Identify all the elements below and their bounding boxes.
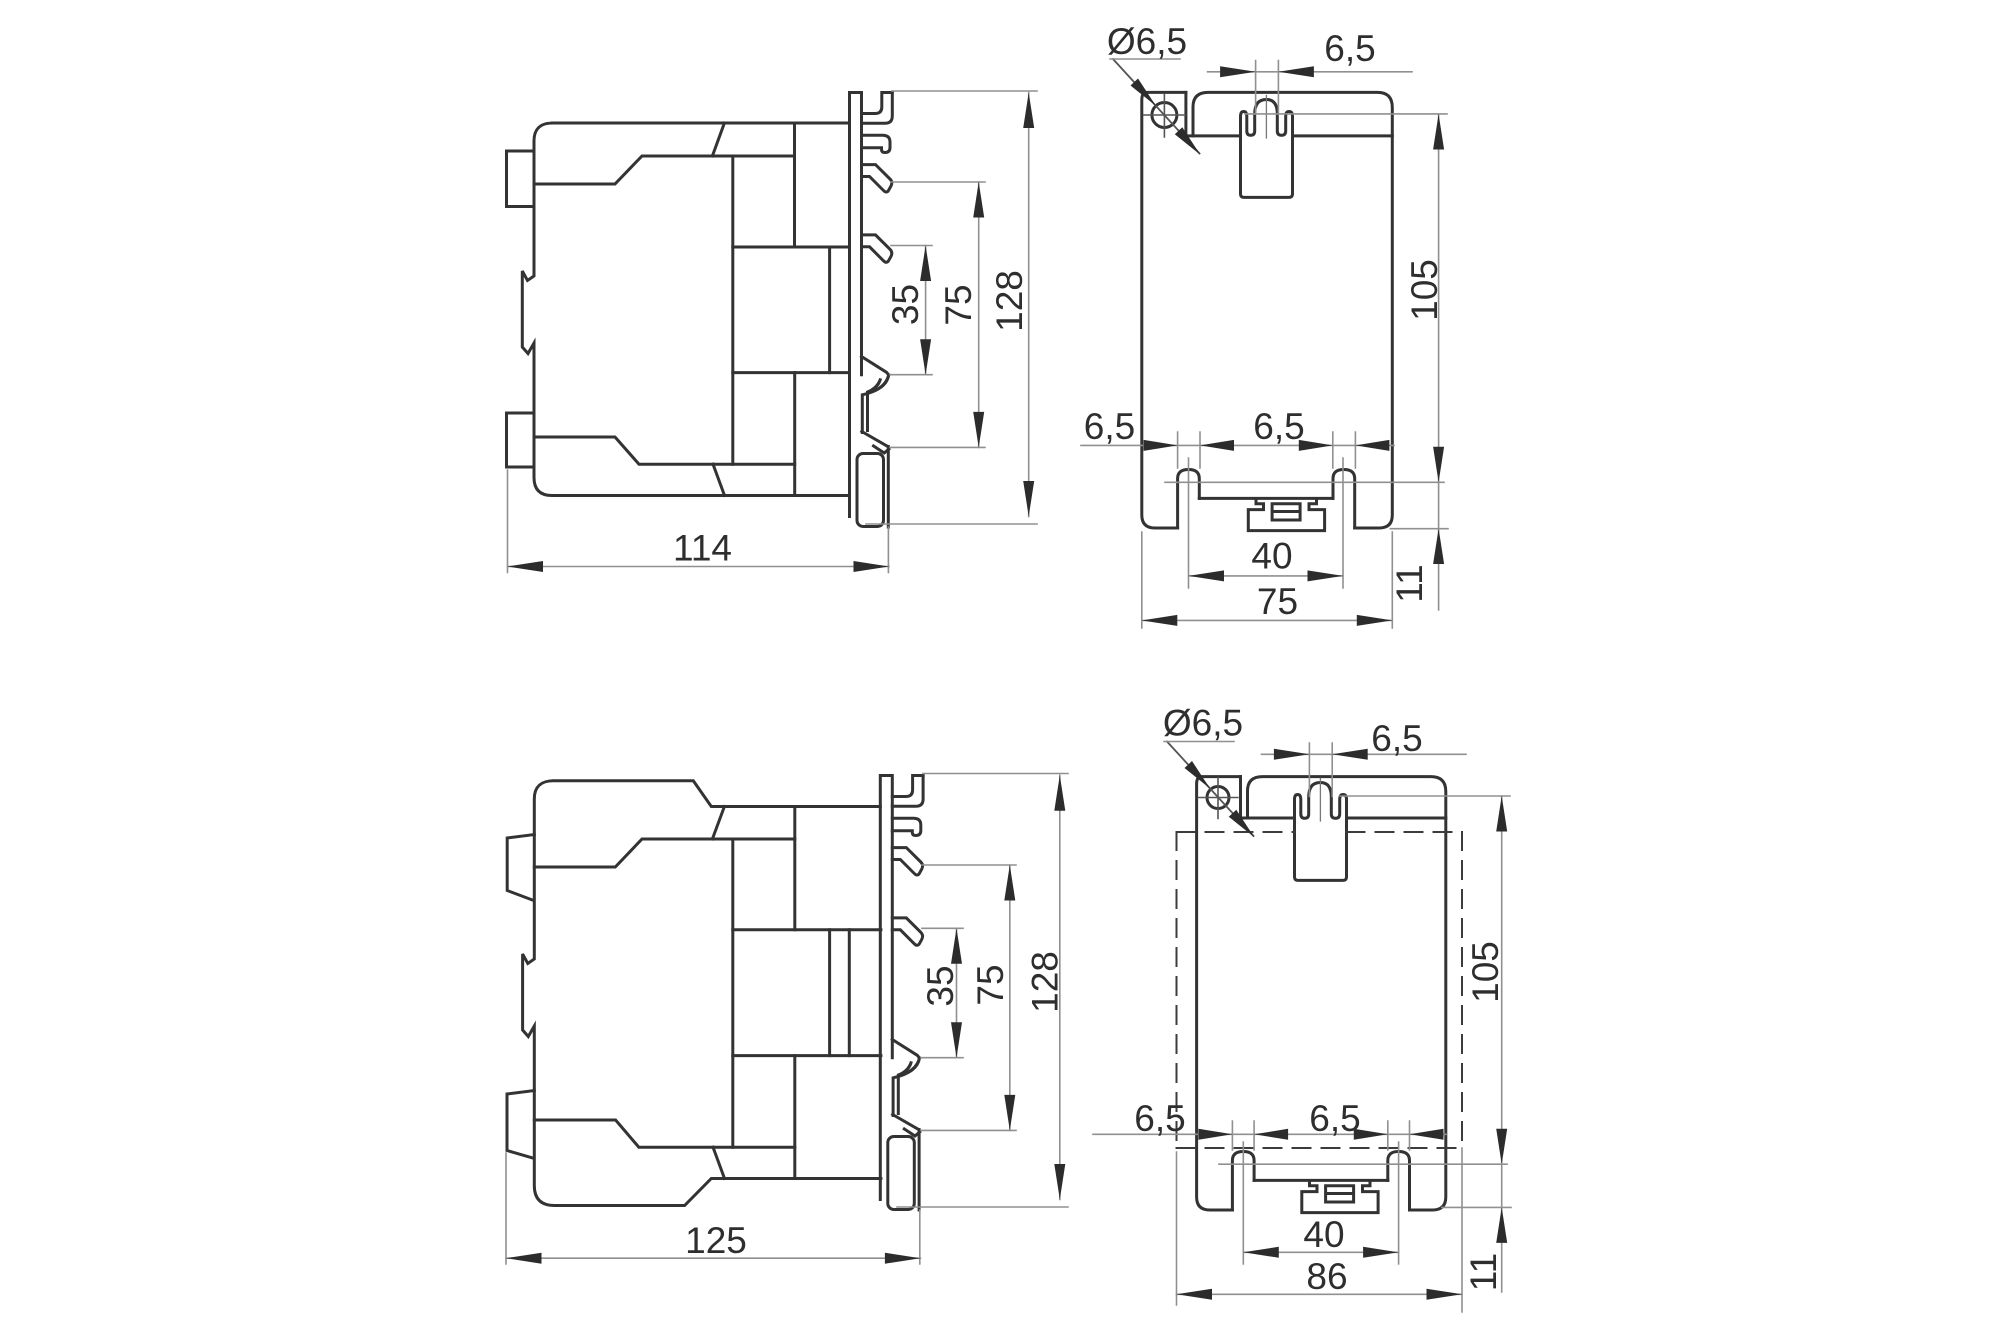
- svg-text:Ø6,5: Ø6,5: [1107, 21, 1187, 62]
- svg-text:11: 11: [1463, 1253, 1504, 1291]
- svg-text:6,5: 6,5: [1324, 28, 1375, 69]
- svg-text:86: 86: [1306, 1256, 1347, 1297]
- svg-text:75: 75: [970, 964, 1011, 1005]
- svg-text:35: 35: [920, 965, 961, 1006]
- svg-text:114: 114: [673, 528, 732, 569]
- svg-text:11: 11: [1389, 564, 1430, 602]
- svg-text:6,5: 6,5: [1371, 718, 1422, 759]
- svg-text:35: 35: [885, 284, 926, 325]
- svg-text:125: 125: [685, 1220, 747, 1261]
- svg-text:128: 128: [989, 270, 1030, 332]
- svg-text:105: 105: [1404, 259, 1445, 321]
- svg-text:6,5: 6,5: [1084, 406, 1135, 447]
- svg-text:75: 75: [938, 284, 979, 325]
- svg-text:128: 128: [1025, 951, 1066, 1013]
- svg-text:40: 40: [1303, 1214, 1344, 1255]
- svg-text:105: 105: [1465, 941, 1506, 1003]
- svg-text:40: 40: [1251, 536, 1292, 577]
- svg-text:6,5: 6,5: [1134, 1098, 1185, 1139]
- svg-text:Ø6,5: Ø6,5: [1163, 703, 1243, 744]
- svg-text:6,5: 6,5: [1253, 406, 1304, 447]
- svg-text:6,5: 6,5: [1309, 1098, 1360, 1139]
- svg-text:75: 75: [1257, 581, 1298, 622]
